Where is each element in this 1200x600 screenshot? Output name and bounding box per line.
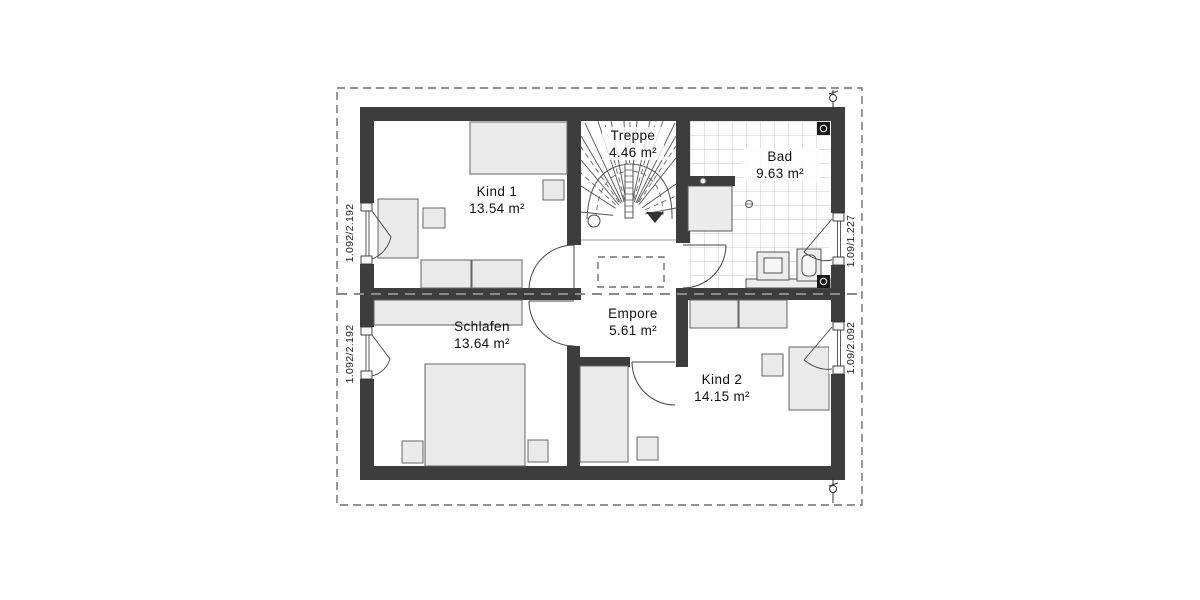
door-kind2 [632,362,675,405]
schlafen-bed [425,364,525,466]
room-label-kind1-area: 13.54 m² [469,201,525,216]
door-kind1 [529,245,574,290]
dim-window-right-top: 1.09/1.227 [845,215,857,268]
stair-spine [625,164,633,218]
window-schlafen [359,327,390,379]
room-label-schlafen-area: 13.64 m² [454,336,510,351]
room-label-bad-area: 9.63 m² [756,166,804,181]
room-label-bad-name: Bad [767,149,792,164]
room-label-empore-area: 5.61 m² [609,323,657,338]
room-label-kind2-area: 14.15 m² [694,389,750,404]
kind1-sofa-left [421,260,471,288]
kind1-chair [423,208,445,228]
kind1-desk [378,199,418,258]
downpipe-top-icon [830,95,837,102]
wall-shower-stub [688,176,735,186]
downpipe-bottom-icon [830,486,837,493]
valve-symbol [700,178,706,184]
dim-window-left-bottom: 1.092/2.192 [344,325,356,384]
empore-void-dashed [598,257,664,287]
room-label-treppe-name: Treppe [611,128,656,143]
wall-post-schlafen-door [567,346,580,357]
stair-newel-circle [588,215,600,227]
washbasin-bowl [764,258,782,273]
duct-bottom-right [817,275,830,288]
kind2-sofa-left [690,300,738,328]
duct-top-right [817,122,830,135]
shower-tray [688,186,732,231]
room-label-schlafen-name: Schlafen [454,319,510,334]
room-label-treppe-area: 4.46 m² [609,145,657,160]
wall-schlafen-kind2 [567,357,580,467]
dim-window-right-bottom: 1.09/2.092 [845,322,857,375]
room-label-kind2-name: Kind 2 [702,372,743,387]
dim-window-left-top: 1.092/2.192 [344,204,356,263]
kind1-bed [470,122,567,174]
schlafen-nightstand-right [528,440,548,462]
floor-plan-page: Kind 1 13.54 m² Treppe 4.46 m² Bad 9.63 … [0,0,1200,600]
kind2-box [637,437,658,460]
kind1-side-table [543,180,564,200]
stair-direction-arrow [646,212,664,223]
kind2-chair [762,354,783,376]
room-label-empore-name: Empore [608,306,658,321]
kind2-sofa-right [739,300,787,328]
kind1-sofa-right [472,260,522,288]
room-label-kind1-name: Kind 1 [477,184,518,199]
schlafen-nightstand-left [402,441,423,463]
kind2-wardrobe [580,366,628,462]
kind2-desk [789,347,829,410]
door-schlafen [529,301,574,346]
floor-plan-svg: Kind 1 13.54 m² Treppe 4.46 m² Bad 9.63 … [0,0,1200,600]
wall-kind1-treppe [567,121,581,245]
